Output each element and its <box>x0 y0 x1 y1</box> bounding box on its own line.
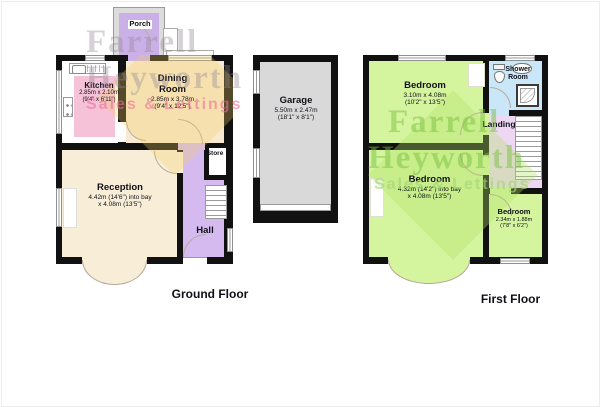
ground-floor-title: Ground Floor <box>150 287 270 301</box>
sink-icon <box>69 63 106 74</box>
bedroom2-dim1: 4.32m (14'2") into bay <box>382 186 477 193</box>
kitchen-name: Kitchen <box>66 81 132 90</box>
kitchen-left-window <box>56 70 62 134</box>
door-gap-shower <box>489 110 509 116</box>
store-name: Store <box>202 150 228 157</box>
bedroom3-bottom-window <box>500 258 530 264</box>
bedroom3-dim-ft: (7'8" x 6'2") <box>487 223 541 229</box>
reception-label: Reception 4.42m (14'6") into bay x 4.08m… <box>72 183 168 209</box>
garage-dim-m: 5.50m x 2.47m <box>258 107 334 114</box>
bedroom2-name: Bedroom <box>382 175 477 186</box>
door-gap-bedroom2 <box>483 155 489 175</box>
door-gap-porch-dining <box>128 55 150 61</box>
garage-left-window-2 <box>253 148 260 178</box>
room-garage <box>260 62 331 211</box>
front-door-gap <box>183 257 207 264</box>
bedroom2-dim2: x 4.08m (13'5") <box>382 193 477 200</box>
shower-name2: Room <box>496 74 540 82</box>
door-gap-kitchen-dining <box>118 122 126 142</box>
bedroom1-dim-m: 3.10m x 4.08m <box>385 92 465 99</box>
dining-label: Dining Room 2.85m x 3.78m (9'4" x 12'5") <box>135 74 210 111</box>
shower-name1: Shower <box>496 66 540 74</box>
landing-name: Landing <box>474 120 524 130</box>
store-label: Store <box>202 150 228 157</box>
dining-dim-ft: (9'4" x 12'5") <box>135 103 210 110</box>
kitchen-dim-ft: (9'4" x 6'11") <box>66 97 132 104</box>
door-gap-dining-hall <box>178 143 205 150</box>
reception-name: Reception <box>72 183 168 194</box>
garage-plan <box>253 55 338 223</box>
dining-top-window <box>168 55 212 61</box>
bedroom1-top-window <box>398 55 446 61</box>
landing-label: Landing <box>474 120 524 130</box>
garage-label: Garage 5.50m x 2.47m (18'1" x 8'1") <box>258 96 334 122</box>
floorplan-canvas: Porch <box>0 0 600 407</box>
bedroom1-dim-ft: (10'2" x 13'5") <box>385 99 465 106</box>
bedroom3-label: Bedroom 2.34m x 1.88m (7'8" x 6'2") <box>487 208 541 229</box>
bedroom1-label: Bedroom 3.10m x 4.08m (10'2" x 13'5") <box>385 81 465 107</box>
hall-name: Hall <box>185 226 225 237</box>
hall-right-window <box>227 228 233 252</box>
shower-top-window <box>505 55 535 61</box>
shower-label: Shower Room <box>496 66 540 82</box>
reception-dim2: x 4.08m (13'5") <box>72 201 168 208</box>
porch-label: Porch <box>124 13 156 31</box>
bedroom2-label: Bedroom 4.32m (14'2") into bay x 4.08m (… <box>382 175 477 201</box>
kitchen-dim-m: 2.85m x 2.10m <box>66 90 132 97</box>
first-floor-title: First Floor <box>458 292 563 306</box>
hall-label: Hall <box>185 226 225 237</box>
shower-tray-icon <box>516 84 539 107</box>
bedroom1-inset <box>468 63 485 87</box>
door-gap-hall-reception <box>177 152 183 173</box>
bedroom3-name: Bedroom <box>487 208 541 217</box>
dining-dim-m: 2.85m x 3.78m <box>135 96 210 103</box>
dining-name2: Room <box>135 85 210 96</box>
bedroom1-name: Bedroom <box>385 81 465 92</box>
reception-left-window <box>56 188 62 227</box>
garage-name: Garage <box>258 96 334 107</box>
porch-name: Porch <box>128 20 151 29</box>
garage-door <box>260 204 331 211</box>
garage-left-window-1 <box>253 70 260 94</box>
kitchen-top-window <box>85 55 105 61</box>
ground-stairs <box>205 185 227 219</box>
kitchen-label: Kitchen 2.85m x 2.10m (9'4" x 6'11") <box>66 81 132 104</box>
room-store-walls <box>204 143 231 180</box>
door-gap-bedroom3 <box>490 188 511 194</box>
garage-dim-ft: (18'1" x 8'1") <box>258 114 334 121</box>
reception-dim1: 4.42m (14'6") into bay <box>72 194 168 201</box>
